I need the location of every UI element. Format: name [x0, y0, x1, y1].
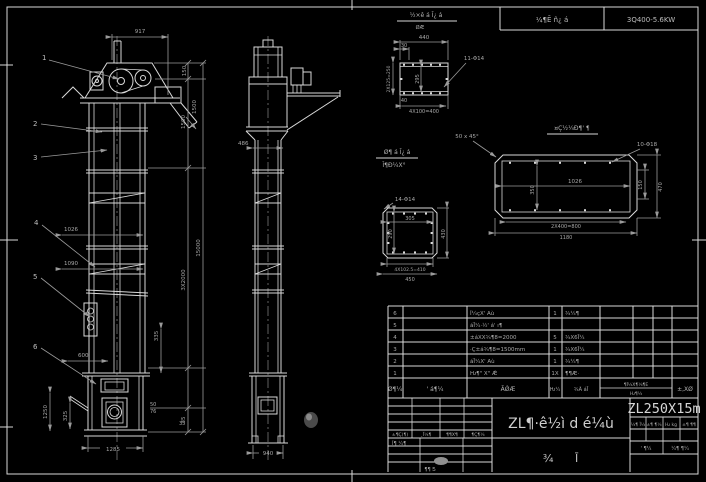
balloon-3: 3 [33, 154, 37, 162]
dim-486: 486 [238, 141, 249, 147]
detail-b-title: ¤Ç½¼Ð¶' ¶ [554, 125, 590, 132]
detail-a-scale: ØÆ [416, 24, 425, 31]
dim-3x2000: 3X2000 [181, 269, 187, 291]
bom-r3-mat: ¾X6Ī¼ [565, 346, 585, 353]
model-cell-4: ±¶ ¶¶ [682, 422, 696, 428]
casing-bracket [84, 303, 97, 336]
detail-b-holes-label: 10-Φ18 [637, 142, 658, 148]
detail-b-dim-right1: 150 [638, 180, 644, 190]
side-view: 486 940 [238, 36, 340, 462]
revision-table: ±¶Ç(¶) ¸Ĭ¼¶ ¶¶X¶ ¶Ç¶¼ Ĭ¶ ¼¶ ¶¶ Ƽ [388, 398, 492, 473]
detail-b: ¤Ç½¼Ð¶' ¶ 10-Φ18 1026 350 150 470 2X400=… [495, 125, 664, 241]
detail-b-dim-right2: 470 [658, 182, 664, 192]
stamp-smudge [434, 457, 448, 465]
boot-section-front [70, 373, 150, 436]
bom-r6-no: 6 [393, 311, 397, 317]
smudge-highlight [306, 414, 312, 421]
balloon-4: 4 [34, 219, 39, 227]
detail-a-dim-bottom: 4X100=400 [409, 109, 439, 115]
detail-b-dim-bottom1: 2X400=800 [551, 224, 581, 230]
bom-r1-no: 1 [393, 371, 397, 377]
balloon-1: 1 [42, 54, 46, 62]
rev-h4: ¶Ç¶¼ [471, 432, 485, 438]
cad-drawing-viewport: ¼¶Ē ñ¿ á 3Q400-5.6KW [0, 0, 706, 482]
model-row-1: ' ¶¼ [641, 446, 652, 452]
detail-a-dim-40: 40 [401, 98, 407, 104]
bom-r5-no: 5 [393, 323, 397, 329]
chamfer-note: 50 x 45° [455, 134, 479, 140]
dim-1090: 1090 [64, 261, 78, 267]
balloon-6: 6 [33, 343, 38, 351]
bom-r2-desc: áĪ¼X' Aù [470, 358, 495, 365]
bom-r4-desc: ±áXX¾¶8=2000 [470, 334, 517, 341]
dim-76: 76 [150, 409, 156, 415]
detail-a-dim-left: 2X125=250 [386, 65, 392, 92]
rev-row-label: Ĭ¶ ¼¶ [391, 440, 406, 447]
bom-r6-desc: Ĭ¼çX' Aù [469, 310, 494, 317]
balloon-2: 2 [33, 120, 37, 128]
rev-h2: ¸Ĭ¼¶ [421, 431, 432, 438]
bom-r4-qty: 5 [553, 335, 557, 341]
dim-940: 940 [263, 451, 274, 457]
bom-r2-mat: ¾¼¶ [565, 359, 579, 365]
bom-r6-qty: 1 [553, 311, 557, 317]
detail-b-dim-left: 350 [530, 185, 536, 195]
title-block: ±¶Ç(¶) ¸Ĭ¼¶ ¶¶X¶ ¶Ç¶¼ Ĭ¶ ¼¶ ¶¶ Ƽ ZL¶·ê½ì… [388, 398, 701, 473]
detail-c-title1: Ø¶ á Ī¿ á [384, 149, 411, 156]
detail-b-dim-inner: 1026 [568, 179, 582, 185]
dim-325: 325 [63, 410, 69, 421]
model-cell-1: ¼¶ Ĭ¼ [631, 421, 646, 428]
dim-1250: 1250 [43, 405, 49, 419]
bom-r3-no: 3 [393, 347, 397, 353]
bom-h-mat: ¾Ã áĪ [574, 386, 589, 393]
detail-c-dim-h: 290 [388, 229, 394, 239]
model-panel: ZL250X15m ¼¶ Ĭ¼ ±¶ ¶¼ Ƕ kg ±¶ ¶¶ ' ¶¼ ¼¶… [627, 401, 700, 454]
bom-r3-desc: ·Ç±á¾¶8=1500mm [470, 346, 525, 353]
bom-header: Ø¶¼ ' á¶¼ ÃǾÆ Ƕ¼ ¾Ã áĪ ¶Ĩ¼X¶¼¶E Ƕ¶¼ ±,XØ [388, 381, 693, 397]
bom-h-no: Ø¶¼ [388, 386, 403, 393]
balloon-5: 5 [33, 273, 37, 281]
bom-h-wt2: Ƕ¶¼ [630, 391, 643, 397]
detail-c-dim-bottom2: 450 [405, 277, 415, 283]
bom-r6-mat: ¾¼¶ [565, 311, 579, 317]
bom-r5-desc: áĪ¼·½' á' ı¶ [470, 322, 502, 329]
rev-h3: ¶¶X¶ [446, 432, 458, 438]
rev-bottom-label: ¶¶ Ƽ [424, 467, 436, 473]
bom-h-note: ±,XØ [677, 386, 693, 393]
detail-a-holes-label: 11-Φ14 [464, 56, 485, 62]
bom-r2-qty: 1 [553, 359, 557, 365]
rev-h1: ±¶Ç(¶) [392, 432, 408, 438]
dim-15000: 15000 [196, 239, 202, 257]
dim-50: 50 [150, 402, 156, 408]
detail-a-title: ½×ê á Ī¿ á [410, 12, 443, 19]
bom-h-qty: Ƕ¼ [550, 387, 561, 393]
strip-cell-mid: ¼¶Ē ñ¿ á [536, 15, 569, 24]
detail-b-holes [509, 162, 611, 211]
bom-r1-mat: ¶¶Æ· [565, 371, 579, 377]
bucket-elevator-drawing: ¼¶Ē ñ¿ á 3Q400-5.6KW [0, 0, 706, 482]
model-row-2: ¼¶ ¶¼ [671, 446, 689, 452]
bom-r1-desc: Ƕ¶" X" Ǽ [470, 369, 497, 377]
detail-a-dim-top: 440 [419, 35, 430, 41]
detail-a-dim-inner: 295 [415, 74, 421, 84]
detail-a-dim-30: 30 [401, 43, 407, 49]
drawing-subtitle: ¾ Ī [543, 452, 587, 465]
front-view [62, 36, 197, 462]
dim-1500a: 1500 [181, 115, 187, 129]
dim-1500b: 1500 [192, 100, 198, 114]
dim-600: 600 [78, 353, 89, 359]
bom-h-wt1: ¶Ĩ¼X¶¼¶E [624, 381, 649, 388]
detail-a-holes [400, 64, 447, 94]
dim-917: 917 [135, 29, 146, 35]
strip-cell-right: 3Q400-5.6KW [627, 16, 675, 24]
detail-c-dim-w: 305 [405, 216, 415, 222]
dim-335: 335 [154, 330, 160, 341]
bom-r3-qty: 1 [553, 347, 557, 353]
model-cell-2: ±¶ ¶¼ [646, 422, 662, 428]
detail-a: ½×ê á Ī¿ á ØÆ 440 30 2X125=250 295 40 4X… [386, 12, 485, 115]
bom-rows: 6 Ĭ¼çX' Aù 1 ¾¼¶ 5 áĪ¼·½' á' ı¶ 4 ±áXX¾¶… [393, 310, 585, 377]
bom-r4-no: 4 [393, 335, 397, 341]
bom-r1-qty: 1X [551, 371, 558, 377]
detail-c-holes-label: 14-Φ14 [395, 197, 416, 203]
detail-c: Ø¶ á Ī¿ á Ĭ¶Ð¼X° 14-Φ14 305 290 430 4X10… [376, 149, 449, 283]
top-title-strip: ¼¶Ē ñ¿ á 3Q400-5.6KW [500, 7, 698, 30]
detail-c-dim-bottom1: 4X102.5=410 [394, 267, 425, 273]
drawing-title: ZL¶·ê½ì d é¼ù [508, 416, 614, 432]
model-cell-3: Ƕ kg [665, 422, 677, 428]
bom-r4-mat: ¾X6Ī¼ [565, 334, 585, 341]
dim-150: 150 [182, 65, 188, 76]
bom-h-code: ' á¶¼ [427, 386, 444, 393]
model-number: ZL250X15m [627, 401, 700, 417]
dim-35a: 35 [181, 416, 187, 423]
dim-1026: 1026 [64, 227, 78, 233]
detail-c-dim-right: 430 [441, 229, 447, 239]
height-dimension-chain: 150 1500 1500 3X2000 35 15000 [148, 60, 206, 435]
detail-b-dim-bottom2: 1180 [560, 235, 573, 241]
bom-h-name: ÃǾÆ [501, 386, 516, 393]
detail-c-title2: Ĭ¶Ð¼X° [381, 162, 405, 169]
bom-r2-no: 2 [393, 359, 397, 365]
dim-1285: 1285 [106, 447, 120, 453]
